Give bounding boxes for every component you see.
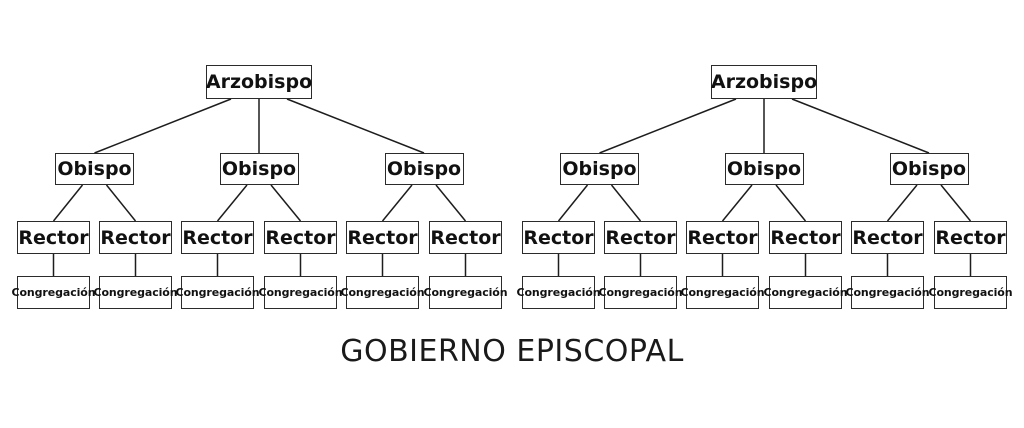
rector-box: Rector [851,221,924,254]
obispo-box: Obispo [890,153,969,185]
rector-box: Rector [429,221,502,254]
congregacion-box: Congregación [522,276,595,309]
diagram-title: GOBIERNO EPISCOPAL [0,334,1024,369]
rector-box: Rector [604,221,677,254]
rector-box: Rector [99,221,172,254]
episcopal-tree-right: Arzobispo Obispo Obispo Obispo Rector Re… [514,0,1011,320]
episcopal-tree-left: Arzobispo Obispo Obispo Obispo Rector Re… [9,0,506,320]
congregacion-box: Congregación [181,276,254,309]
congregacion-box: Congregación [346,276,419,309]
congregacion-box: Congregación [17,276,90,309]
congregacion-box: Congregación [604,276,677,309]
rector-box: Rector [934,221,1007,254]
rector-box: Rector [686,221,759,254]
rector-box: Rector [346,221,419,254]
rector-box: Rector [264,221,337,254]
rector-box: Rector [17,221,90,254]
rector-box: Rector [769,221,842,254]
rector-box: Rector [181,221,254,254]
obispo-box: Obispo [220,153,299,185]
obispo-box: Obispo [385,153,464,185]
congregacion-box: Congregación [851,276,924,309]
congregacion-box: Congregación [769,276,842,309]
congregacion-box: Congregación [429,276,502,309]
obispo-box: Obispo [55,153,134,185]
rector-box: Rector [522,221,595,254]
obispo-box: Obispo [725,153,804,185]
congregacion-box: Congregación [99,276,172,309]
arzobispo-box: Arzobispo [711,65,817,99]
arzobispo-box: Arzobispo [206,65,312,99]
congregacion-box: Congregación [686,276,759,309]
congregacion-box: Congregación [264,276,337,309]
congregacion-box: Congregación [934,276,1007,309]
diagram-canvas: Arzobispo Obispo Obispo Obispo Rector Re… [0,0,1024,428]
obispo-box: Obispo [560,153,639,185]
